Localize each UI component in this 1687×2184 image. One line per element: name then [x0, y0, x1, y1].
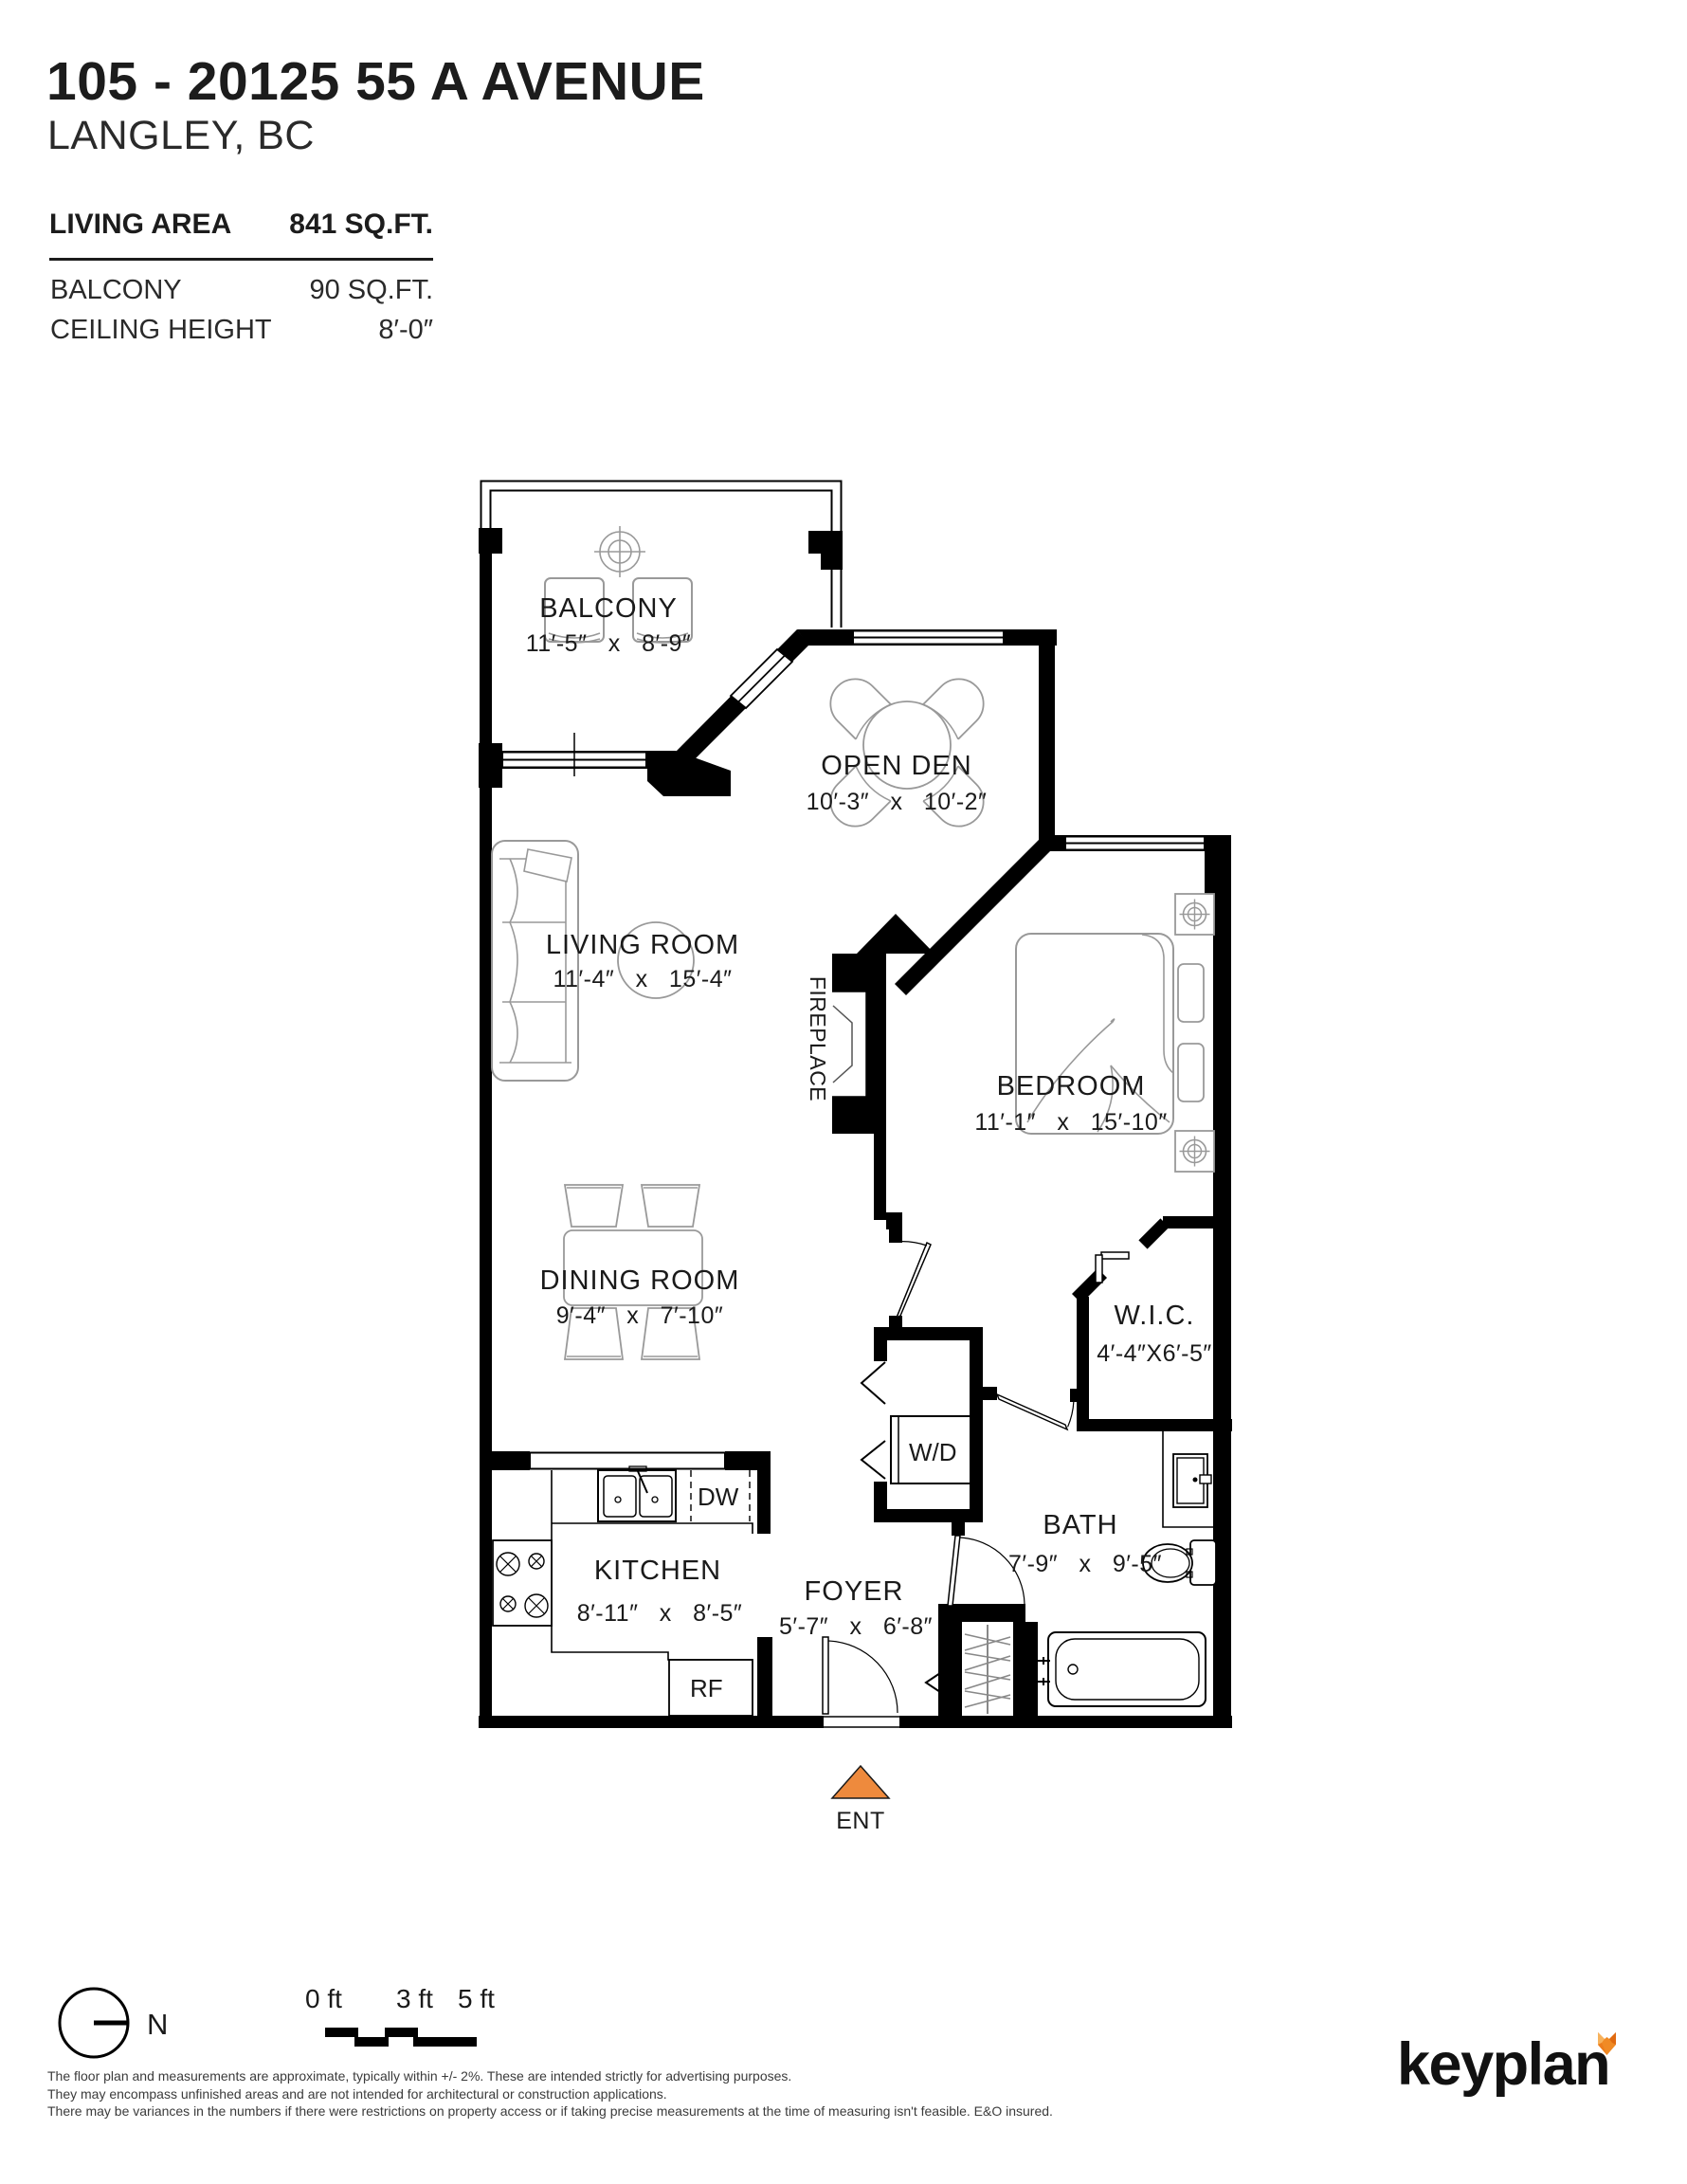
- svg-text:W.I.C.: W.I.C.: [1115, 1301, 1195, 1331]
- svg-text:KITCHEN: KITCHEN: [594, 1556, 721, 1586]
- svg-text:DW: DW: [698, 1483, 739, 1511]
- svg-text:10′-3″ x 10′-2″: 10′-3″ x 10′-2″: [807, 789, 988, 815]
- svg-text:DINING ROOM: DINING ROOM: [540, 1265, 740, 1296]
- svg-text:ENT: ENT: [836, 1808, 885, 1834]
- svg-text:LIVING ROOM: LIVING ROOM: [546, 930, 739, 960]
- svg-text:5′-7″ x 6′-8″: 5′-7″ x 6′-8″: [779, 1613, 933, 1640]
- svg-text:W/D: W/D: [909, 1438, 957, 1466]
- svg-text:BALCONY: BALCONY: [539, 593, 678, 624]
- svg-text:9′-4″ x 7′-10″: 9′-4″ x 7′-10″: [556, 1302, 723, 1329]
- svg-text:8′-11″ x 8′-5″: 8′-11″ x 8′-5″: [577, 1600, 743, 1627]
- svg-text:11′-1″ x 15′-10″: 11′-1″ x 15′-10″: [974, 1109, 1167, 1136]
- svg-text:11′-5″ x 8′-9″: 11′-5″ x 8′-9″: [526, 630, 692, 657]
- svg-text:11′-4″ x 15′-4″: 11′-4″ x 15′-4″: [553, 966, 733, 992]
- svg-text:5 ft: 5 ft: [458, 1984, 495, 2013]
- svg-text:0 ft: 0 ft: [305, 1984, 342, 2013]
- svg-text:N: N: [147, 2008, 168, 2041]
- svg-text:BATH: BATH: [1043, 1510, 1117, 1540]
- svg-text:4′-4″X6′-5″: 4′-4″X6′-5″: [1097, 1340, 1212, 1367]
- svg-text:RF: RF: [690, 1674, 723, 1702]
- svg-text:7′-9″ x 9′-5″: 7′-9″ x 9′-5″: [1008, 1551, 1162, 1577]
- svg-text:FIREPLACE: FIREPLACE: [806, 976, 830, 1101]
- svg-text:OPEN DEN: OPEN DEN: [821, 751, 971, 781]
- svg-text:FOYER: FOYER: [805, 1576, 904, 1607]
- svg-text:BEDROOM: BEDROOM: [997, 1071, 1146, 1101]
- svg-text:3 ft: 3 ft: [396, 1984, 433, 2013]
